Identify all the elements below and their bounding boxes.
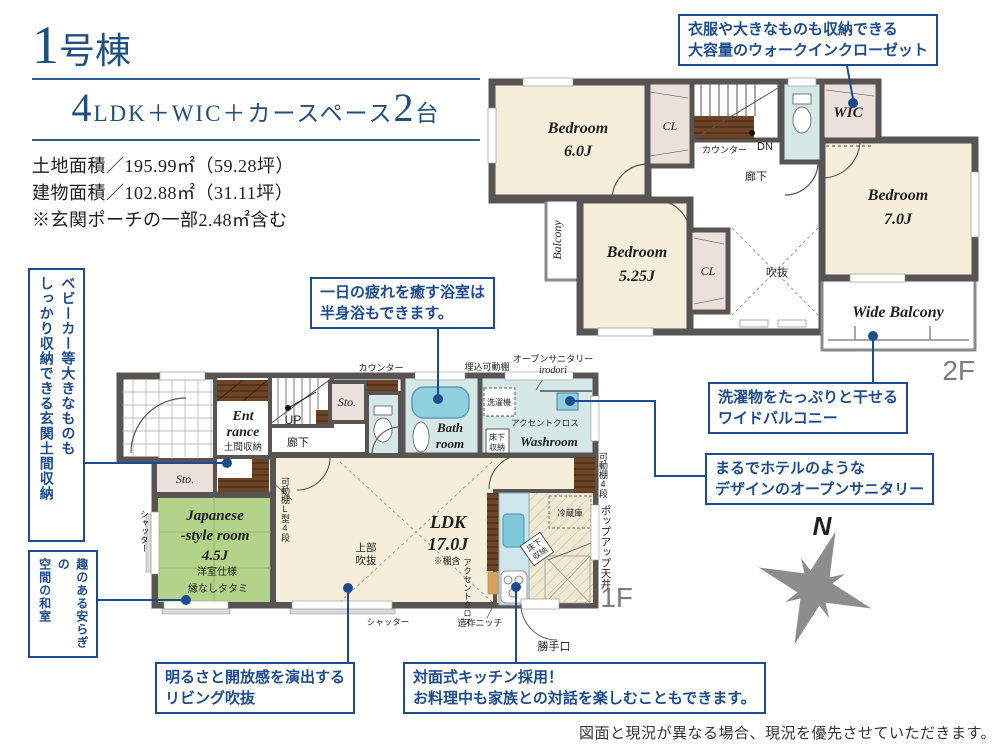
window: [971, 172, 979, 237]
movable-shelf-4: [574, 457, 595, 493]
window: [591, 505, 599, 560]
upper-void-label-1: 上部: [356, 541, 377, 554]
f2-bedroom7-name: Bedroom: [867, 187, 928, 204]
jroom-label-5: 縁なしタタミ: [188, 582, 248, 595]
bath-label-1: Bath: [436, 420, 463, 435]
accent-wall: [487, 493, 499, 571]
window: [523, 78, 573, 86]
f2-counter-label: カウンター: [702, 145, 747, 155]
shutter: [162, 609, 230, 614]
ldk-label-1: LDK: [429, 512, 468, 532]
bath-label-2: room: [436, 436, 464, 451]
window: [151, 512, 159, 574]
front-door: [160, 372, 205, 380]
f2-bedroom5-name: Bedroom: [606, 244, 667, 261]
callout-wide-balcony: 洗濯物をたっぷりと干せる ワイドバルコニー: [708, 382, 908, 434]
disclaimer-note: 図面と現況が異なる場合、現況を優先させていただきます。: [579, 722, 996, 743]
shelf: [252, 459, 269, 492]
underfloor-label-1a: 床下: [489, 432, 505, 442]
floor-2-plan: Bedroom 6.0J CL カウンター DN 廊下 WIC Bedroom …: [488, 78, 979, 386]
f2-bedroom7-size: 7.0J: [884, 211, 913, 228]
accent-cloth-label-2: アクセントクロス: [463, 558, 472, 626]
window: [591, 396, 599, 441]
toilet-icon-1f: [374, 406, 392, 442]
shoe-cabinet: [217, 380, 268, 401]
accent-cloth-label-1: アクセントクロス: [511, 418, 579, 428]
floor-1-plan: 床下 収納 Ent rance 土間収納 UP 廊下: [120, 354, 633, 653]
f1-sto1-label: Sto.: [338, 395, 356, 409]
door-arc: [521, 604, 557, 640]
f2-dn-label: DN: [757, 141, 773, 153]
jroom-label-4: 洋室仕様: [197, 565, 237, 578]
callout-wic: 衣服や大きなものも収納できる 大容量のウォークインクローゼット: [678, 14, 938, 66]
movable-shelf-4-label: 可動棚4段: [598, 452, 607, 498]
entrance-label-1: Ent: [231, 409, 254, 424]
f2-hall-label: 廊下: [745, 169, 767, 183]
shutter-label-left: シャッター: [140, 510, 149, 553]
floor-plan-flyer: 1号棟 4LDK＋WIC＋カースペース2台 土地面積／195.99㎡（59.28…: [0, 0, 1000, 749]
ldk-label-2: 17.0J: [428, 534, 470, 554]
shelf: [218, 478, 252, 492]
window: [850, 274, 905, 282]
callout-bath: 一日の疲れを癒す浴室は 半身浴もできます。: [310, 277, 495, 329]
popup-ceiling-label: ポップアップ天井: [600, 505, 611, 589]
compass-icon: N: [738, 511, 892, 665]
floor-plan-canvas: Bedroom 6.0J CL カウンター DN 廊下 WIC Bedroom …: [0, 0, 1000, 749]
f2-bedroom6-name: Bedroom: [547, 120, 608, 137]
window: [488, 108, 496, 163]
callout-washitsu: 趣のある安らぎの 空間の和室: [28, 550, 98, 658]
entrance-label-2: rance: [227, 425, 260, 440]
toilet-icon-2f: [793, 94, 811, 133]
window: [164, 601, 228, 609]
doma-label: 土間収納: [224, 441, 262, 453]
f1-hall-label: 廊下: [287, 435, 309, 449]
compass-n-label: N: [813, 511, 833, 541]
shutter: [290, 609, 395, 614]
ldk-label-3: ※棚含: [433, 555, 460, 566]
open-sanitary-label: オープンサニタリー: [513, 354, 593, 364]
backdoor-label: 勝手口: [538, 639, 571, 653]
f2-bedroom-7: [822, 140, 975, 278]
f2-void-label: 吹抜: [766, 265, 788, 279]
window: [598, 328, 653, 336]
f2-bedroom-6: [492, 82, 648, 198]
f2-stairs: [692, 82, 780, 140]
movable-shelf-L-label: 可動棚L型4段: [280, 477, 289, 542]
bath-door: [413, 422, 429, 452]
laundry-label: 洗濯機: [487, 397, 511, 407]
f2-bedroom-5: [580, 200, 690, 332]
recessed-shelf-label: 埋込可動棚: [464, 361, 509, 372]
floor-2-label: 2F: [942, 355, 975, 386]
underfloor-label-1b: 収納: [489, 442, 505, 452]
sink: [503, 514, 524, 547]
back-door: [521, 599, 559, 609]
window: [788, 78, 816, 86]
jroom-label-1: Japanese: [185, 508, 244, 524]
f2-cl1-label: CL: [663, 119, 678, 133]
f2-wic-label: WIC: [833, 105, 863, 121]
f1-sto2-label: Sto.: [176, 472, 194, 486]
f2-cl2-label: CL: [701, 264, 716, 278]
f2-counter: [694, 116, 754, 139]
jroom-label-3: 4.5J: [201, 548, 229, 564]
window: [415, 372, 465, 380]
callout-kitchen: 対面式キッチン採用！ お料理中も家族との対話を楽しむこともできます。: [403, 662, 766, 714]
f2-wide-balcony-label: Wide Balcony: [852, 304, 944, 321]
callout-living-void: 明るさと開放感を演出する リビング吹抜: [155, 662, 355, 714]
up-label: UP: [285, 413, 302, 427]
window: [292, 601, 392, 609]
shutter-label-bottom: シャッター: [367, 617, 410, 627]
washroom-label: Washroom: [520, 434, 578, 449]
f2-bedroom6-size: 6.0J: [564, 143, 593, 160]
callout-open-sanitary: まるでホテルのような デザインのオープンサニタリー: [705, 453, 934, 505]
irodori-label: irodori: [539, 365, 567, 376]
f1-counter-label: カウンター: [358, 363, 403, 373]
upper-void-label-2: 吹抜: [356, 554, 377, 567]
jroom-label-2: -style room: [181, 528, 250, 544]
fridge-label: 冷蔵庫: [557, 508, 583, 518]
callout-genkan-storage: ベビーカー等大きなものも しっかり収納できる玄関土間収納: [28, 268, 85, 542]
f2-balcony-label: Balcony: [550, 220, 564, 260]
niche: [488, 572, 498, 594]
f2-bedroom5-size: 5.25J: [619, 268, 656, 285]
